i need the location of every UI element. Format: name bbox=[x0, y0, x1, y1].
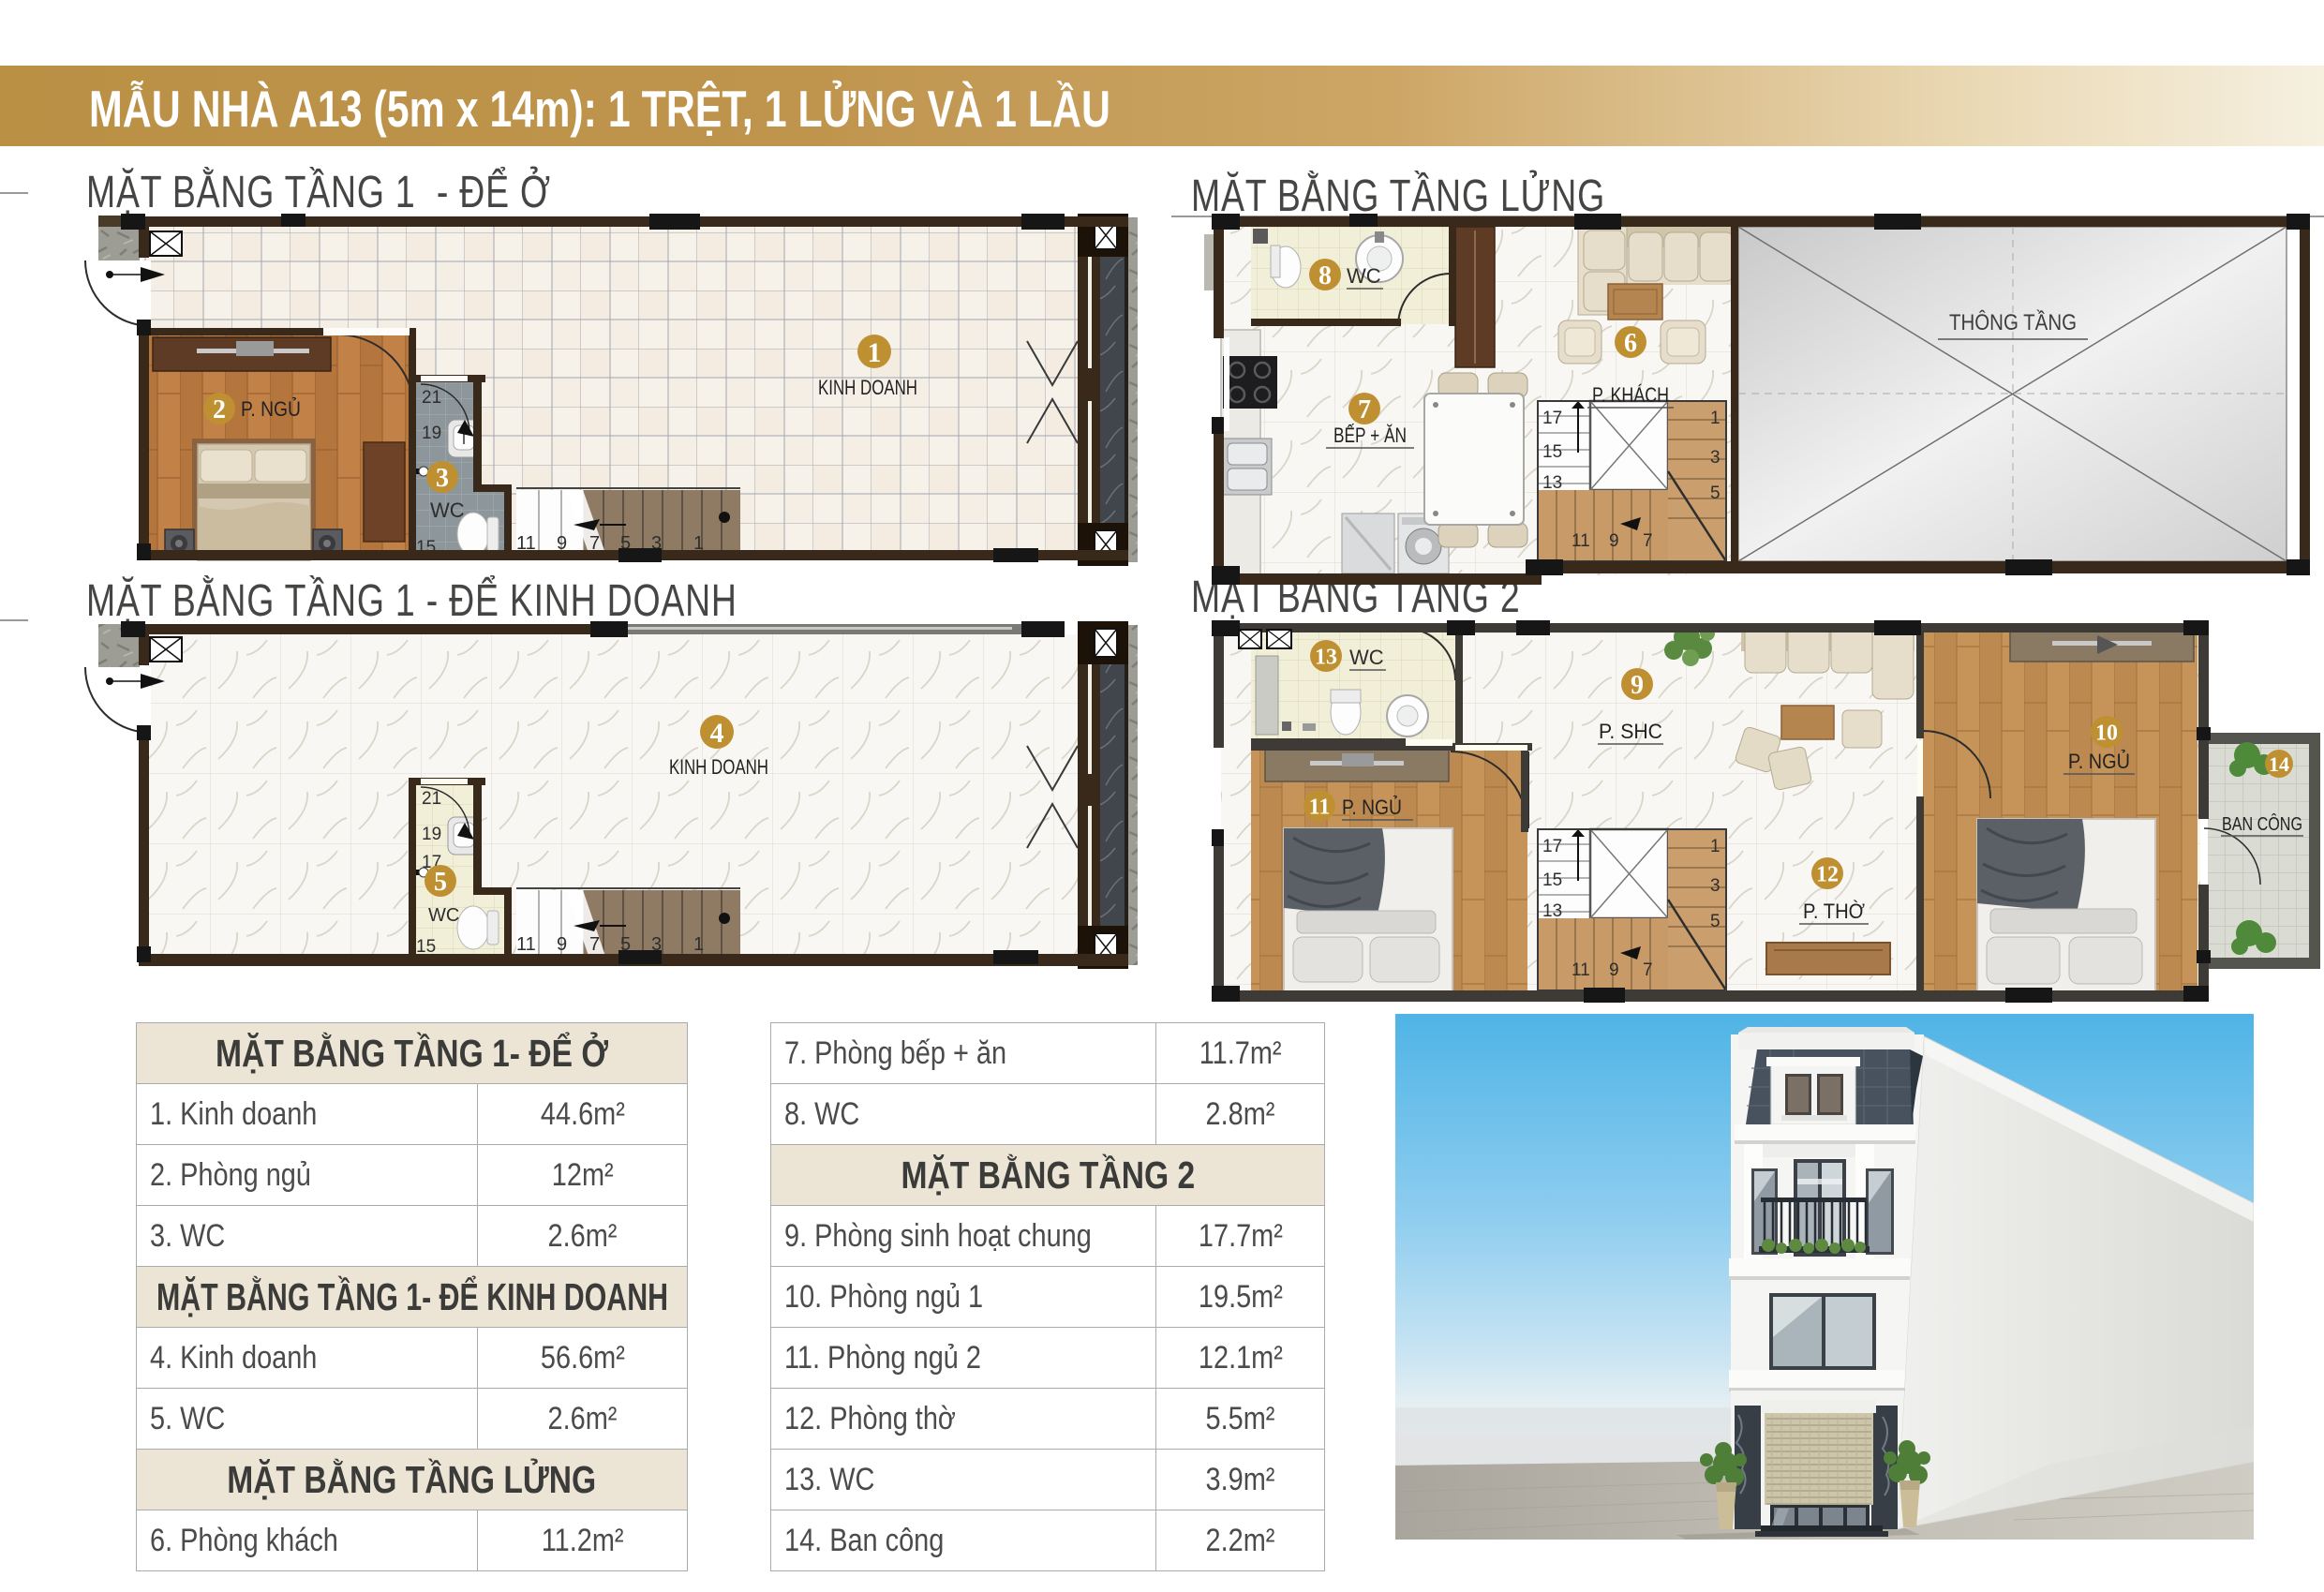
svg-text:1: 1 bbox=[1710, 409, 1721, 428]
svg-text:6: 6 bbox=[1624, 329, 1637, 358]
svg-text:THÔNG TẦNG: THÔNG TẦNG bbox=[1949, 309, 2077, 335]
svg-text:P. THỜ: P. THỜ bbox=[1803, 900, 1865, 923]
svg-text:KINH DOANH: KINH DOANH bbox=[669, 755, 768, 779]
svg-text:P. NGỦ: P. NGỦ bbox=[2068, 750, 2130, 773]
svg-text:13: 13 bbox=[1542, 901, 1562, 921]
svg-text:5: 5 bbox=[434, 868, 447, 897]
svg-text:2: 2 bbox=[213, 395, 226, 424]
svg-text:14: 14 bbox=[2269, 752, 2289, 776]
svg-text:15: 15 bbox=[1542, 870, 1562, 890]
svg-text:9: 9 bbox=[1609, 960, 1619, 980]
svg-text:13: 13 bbox=[1542, 473, 1562, 493]
svg-text:11: 11 bbox=[1309, 796, 1331, 820]
svg-text:5: 5 bbox=[1710, 912, 1721, 931]
svg-text:9: 9 bbox=[1631, 671, 1644, 700]
svg-text:KINH DOANH: KINH DOANH bbox=[818, 376, 917, 399]
svg-text:9: 9 bbox=[557, 934, 567, 955]
svg-text:21: 21 bbox=[422, 789, 441, 809]
svg-text:15: 15 bbox=[1542, 442, 1562, 462]
svg-text:3: 3 bbox=[1710, 876, 1721, 896]
svg-text:17: 17 bbox=[1542, 409, 1562, 428]
svg-text:11: 11 bbox=[1572, 960, 1590, 980]
svg-text:11: 11 bbox=[1572, 531, 1590, 551]
svg-text:3: 3 bbox=[436, 464, 449, 493]
svg-text:1: 1 bbox=[693, 934, 704, 955]
svg-text:P. SHC: P. SHC bbox=[1599, 720, 1662, 743]
svg-text:7: 7 bbox=[589, 934, 600, 955]
svg-text:15: 15 bbox=[416, 937, 436, 957]
svg-text:5: 5 bbox=[1710, 484, 1721, 503]
svg-text:WC: WC bbox=[1347, 264, 1381, 288]
svg-text:13: 13 bbox=[1315, 646, 1337, 670]
svg-text:8: 8 bbox=[1318, 261, 1332, 290]
svg-text:7: 7 bbox=[1358, 395, 1371, 424]
svg-text:BẾP + ĂN: BẾP + ĂN bbox=[1333, 424, 1407, 447]
svg-text:1: 1 bbox=[1710, 837, 1721, 856]
svg-text:3: 3 bbox=[1710, 448, 1721, 468]
svg-text:21: 21 bbox=[422, 388, 441, 408]
svg-text:P. KHÁCH: P. KHÁCH bbox=[1592, 383, 1669, 407]
svg-text:WC: WC bbox=[430, 498, 465, 522]
svg-text:4: 4 bbox=[710, 718, 724, 749]
svg-text:1: 1 bbox=[868, 337, 882, 368]
svg-text:BAN CÔNG: BAN CÔNG bbox=[2222, 813, 2302, 835]
svg-text:9: 9 bbox=[1609, 531, 1619, 551]
svg-text:12: 12 bbox=[1816, 863, 1839, 887]
svg-text:P. NGỦ: P. NGỦ bbox=[241, 397, 301, 421]
svg-text:P. NGỦ: P. NGỦ bbox=[1342, 796, 1402, 819]
svg-text:WC: WC bbox=[428, 905, 459, 926]
svg-text:19: 19 bbox=[422, 825, 441, 844]
svg-text:19: 19 bbox=[422, 424, 441, 443]
svg-text:7: 7 bbox=[1643, 960, 1653, 980]
svg-text:7: 7 bbox=[1643, 531, 1653, 551]
svg-text:10: 10 bbox=[2095, 722, 2118, 746]
svg-text:WC: WC bbox=[1349, 646, 1384, 669]
svg-text:11: 11 bbox=[516, 934, 536, 955]
svg-text:17: 17 bbox=[1542, 837, 1562, 856]
